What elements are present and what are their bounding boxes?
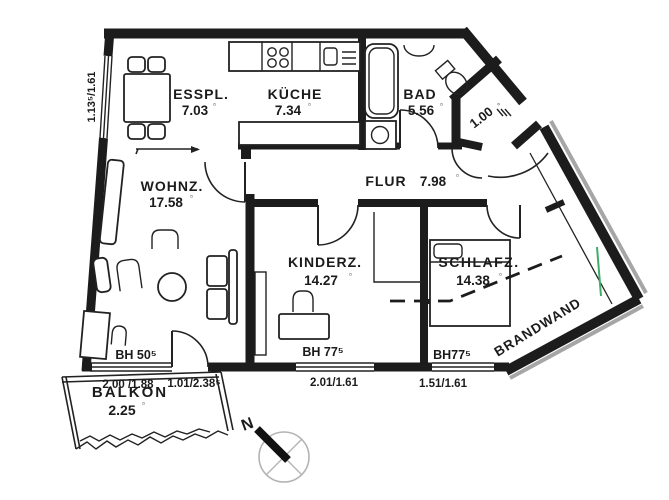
dim-kinderz-window: 2.01/1.61 <box>310 377 359 389</box>
dim-wohnz-window: 2.00 /1.88 <box>102 379 154 391</box>
room-label-kueche: KÜCHE <box>268 86 323 102</box>
room-area-bad: 5.56 <box>408 103 435 118</box>
flur-corner-stub <box>546 202 564 210</box>
chair <box>148 124 165 139</box>
coat-hooks <box>497 109 511 116</box>
sqm-symbol: ▫ <box>142 399 145 408</box>
sill-height-schlafz: BH77⁵ <box>433 348 471 362</box>
room-area-kueche: 7.34 <box>275 103 302 118</box>
kitchen-lower-counter <box>239 122 360 145</box>
sqm-symbol: ▫ <box>495 100 503 109</box>
room-label-esspl: ESSPL. <box>173 86 229 102</box>
sqm-symbol: ▫ <box>308 100 311 109</box>
esspl-furniture <box>124 57 170 139</box>
chair <box>128 57 145 72</box>
room-label-wohnz: WOHNZ. <box>141 178 204 194</box>
armchair <box>152 230 178 249</box>
kinderz-window <box>296 363 374 371</box>
esspl-window <box>100 56 112 138</box>
wohnz-door <box>205 162 245 202</box>
sqm-symbol: ▫ <box>499 270 502 279</box>
bathtub <box>365 44 398 118</box>
wohnz-window <box>90 363 172 371</box>
room-label-bad: BAD <box>403 86 436 102</box>
room-label-kinderz: KINDERZ. <box>288 254 362 270</box>
sqm-symbol: ▫ <box>213 100 216 109</box>
kinderz-furniture <box>255 212 446 355</box>
bathroom-sink <box>404 45 434 56</box>
balcony-hedge <box>80 429 210 441</box>
room-label-flur: FLUR <box>365 173 406 189</box>
firewall-upper <box>544 127 639 299</box>
chair <box>293 291 313 312</box>
desk <box>279 314 329 339</box>
entrance-door <box>488 153 548 177</box>
schlafz-door <box>487 205 520 238</box>
room-area-wohnz: 17.58 <box>149 195 183 210</box>
floor-plan-drawing: N ESSPL. 7.03 ▫ KÜCHE 7.34 ▫ BAD 5.56 ▫ … <box>0 0 669 500</box>
coffee-table <box>158 273 186 301</box>
room-area-balkon: 2.25 <box>108 402 135 418</box>
dining-table <box>124 74 170 122</box>
room-area-garderobe: 1.00 <box>467 104 496 131</box>
dim-balkon-door: 1.01/2.38⁵ <box>167 378 220 390</box>
compass-north-label: N <box>239 415 256 435</box>
compass: N <box>239 415 309 482</box>
room-area-kinderz: 14.27 <box>304 273 338 288</box>
dim-schlafz-window: 1.51/1.61 <box>419 378 468 390</box>
garderobe-east-wall <box>514 124 539 146</box>
washing-machine <box>365 121 396 149</box>
chair <box>148 57 165 72</box>
sqm-symbol: ▫ <box>190 192 193 201</box>
room-area-schlafz: 14.38 <box>456 273 490 288</box>
schlafz-window <box>432 363 494 371</box>
room-area-flur: 7.98 <box>420 174 447 189</box>
esspl-wohnz-opening <box>136 146 200 154</box>
sill-height-wohnz: BH 50⁵ <box>115 348 156 362</box>
armchair <box>116 258 142 291</box>
kinderz-door <box>318 205 358 245</box>
sill-height-kinderz: BH 77⁵ <box>302 345 343 359</box>
sofa <box>207 250 237 324</box>
floor-plan-page: N ESSPL. 7.03 ▫ KÜCHE 7.34 ▫ BAD 5.56 ▫ … <box>0 0 669 500</box>
wardrobe <box>255 272 266 355</box>
balkon-door <box>172 331 208 367</box>
closet-lines <box>374 212 423 282</box>
room-label-schlafz: SCHLAFZ. <box>438 254 519 270</box>
green-mark-line <box>597 247 601 296</box>
room-area-esspl: 7.03 <box>182 103 209 118</box>
sqm-symbol: ▫ <box>456 171 459 180</box>
dim-esspl-window: 1.13⁵/1.61 <box>86 71 98 122</box>
kitchen-counter <box>229 42 360 71</box>
chair <box>128 124 145 139</box>
sqm-symbol: ▫ <box>440 100 443 109</box>
sqm-symbol: ▫ <box>349 270 352 279</box>
